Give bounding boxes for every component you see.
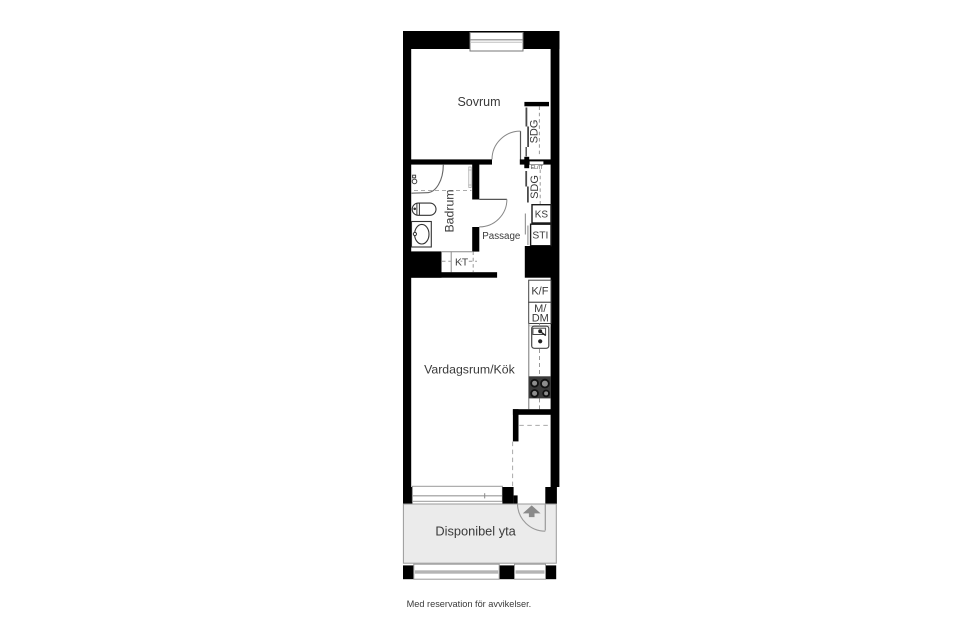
svg-text:Badrum: Badrum [442, 189, 456, 232]
svg-text:Passage: Passage [482, 231, 521, 242]
svg-text:DM: DM [532, 313, 549, 325]
svg-text:KT: KT [455, 258, 469, 269]
svg-text:EL/IT: EL/IT [531, 165, 544, 171]
svg-text:STI: STI [532, 231, 548, 242]
svg-text:Vardagsrum/Kök: Vardagsrum/Kök [424, 363, 516, 377]
svg-text:SDG: SDG [529, 120, 541, 144]
svg-text:Sovrum: Sovrum [457, 95, 500, 109]
svg-text:SDG: SDG [529, 175, 541, 199]
svg-text:Disponibel yta: Disponibel yta [435, 523, 516, 538]
svg-text:K/F: K/F [531, 286, 548, 298]
svg-text:Med reservation för avvikelser: Med reservation för avvikelser. [407, 599, 532, 609]
svg-text:KS: KS [535, 210, 549, 221]
